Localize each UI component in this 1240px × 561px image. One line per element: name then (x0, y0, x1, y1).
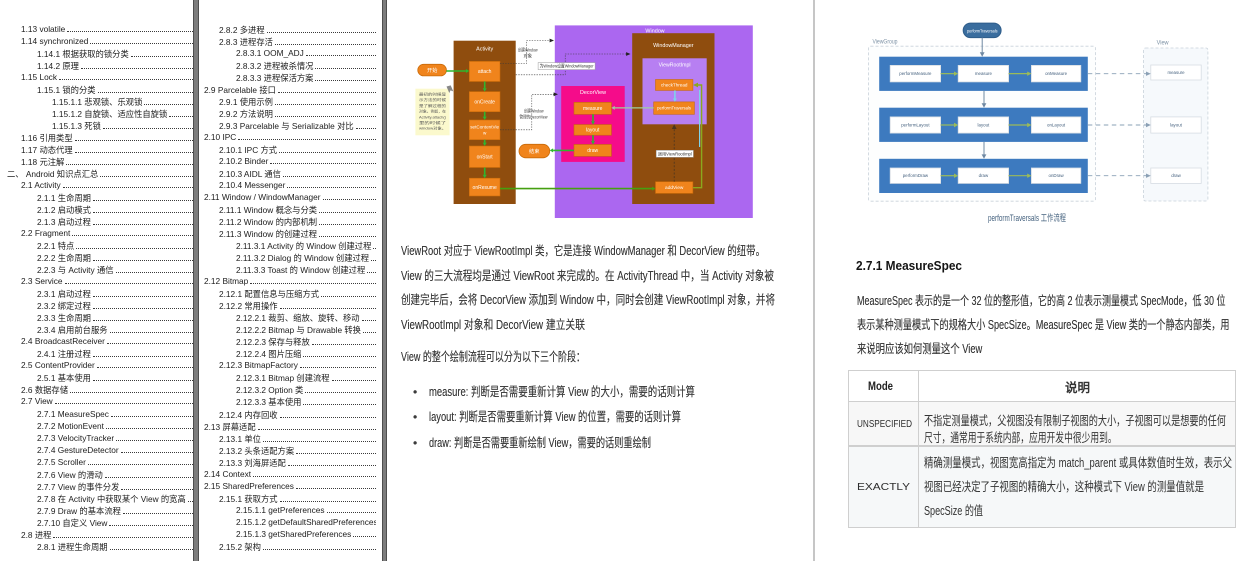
svg-text:里的时候了: 里的时候了 (419, 120, 447, 125)
svg-text:attach: attach (478, 69, 492, 75)
svg-text:draw: draw (979, 173, 989, 178)
svg-text:DecorView: DecorView (580, 90, 606, 96)
svg-text:onStart: onStart (477, 155, 494, 161)
svg-text:performMeasure: performMeasure (899, 71, 932, 76)
svg-text:layout: layout (586, 128, 600, 134)
svg-text:ViewGroup: ViewGroup (873, 39, 898, 46)
svg-text:performDraw: performDraw (903, 173, 929, 178)
svg-text:开始: 开始 (427, 67, 438, 74)
svg-text:是了解过程的: 是了解过程的 (419, 103, 447, 108)
svg-text:addView: addView (665, 185, 684, 191)
svg-text:measure: measure (583, 106, 603, 112)
svg-text:Activity.attach(): Activity.attach() (419, 115, 446, 119)
svg-text:measure: measure (1167, 70, 1185, 75)
svg-text:Activity: Activity (476, 46, 493, 52)
svg-text:checkThread: checkThread (661, 83, 688, 88)
svg-text:onCreate: onCreate (474, 99, 495, 105)
svg-text:layout: layout (1170, 123, 1182, 128)
svg-text:View: View (1157, 40, 1169, 47)
svg-text:performTraversals: performTraversals (967, 28, 998, 33)
svg-text:WindowManager: WindowManager (653, 43, 694, 49)
svg-text:管理的DecorView: 管理的DecorView (520, 113, 549, 120)
svg-text:调用ViewRootImpl: 调用ViewRootImpl (658, 150, 692, 157)
svg-text:onDraw: onDraw (1049, 173, 1065, 178)
svg-text:对象。例如，在: 对象。例如，在 (419, 109, 446, 114)
svg-text:window对象。: window对象。 (419, 126, 446, 131)
svg-text:为Window设置WindowManager: 为Window设置WindowManager (540, 63, 595, 70)
svg-text:ViewRootImpl: ViewRootImpl (659, 62, 691, 68)
svg-text:draw: draw (587, 148, 598, 154)
svg-text:layout: layout (978, 123, 990, 128)
svg-text:最初的时候显: 最初的时候显 (419, 92, 447, 97)
svg-text:onLayout: onLayout (1047, 123, 1066, 128)
svg-text:setContentVie: setContentVie (470, 125, 499, 130)
svg-text:onMeasure: onMeasure (1045, 71, 1068, 76)
svg-text:performTraversals: performTraversals (657, 106, 691, 111)
svg-text:performLayout: performLayout (901, 123, 930, 128)
svg-text:结束: 结束 (529, 148, 540, 155)
svg-text:示方法的时候: 示方法的时候 (419, 97, 447, 102)
svg-text:draw: draw (1171, 173, 1181, 178)
svg-text:onResume: onResume (473, 185, 497, 191)
svg-text:measure: measure (975, 71, 993, 76)
svg-text:performTraversals 工作流程: performTraversals 工作流程 (988, 212, 1066, 223)
svg-text:对象: 对象 (524, 52, 533, 58)
